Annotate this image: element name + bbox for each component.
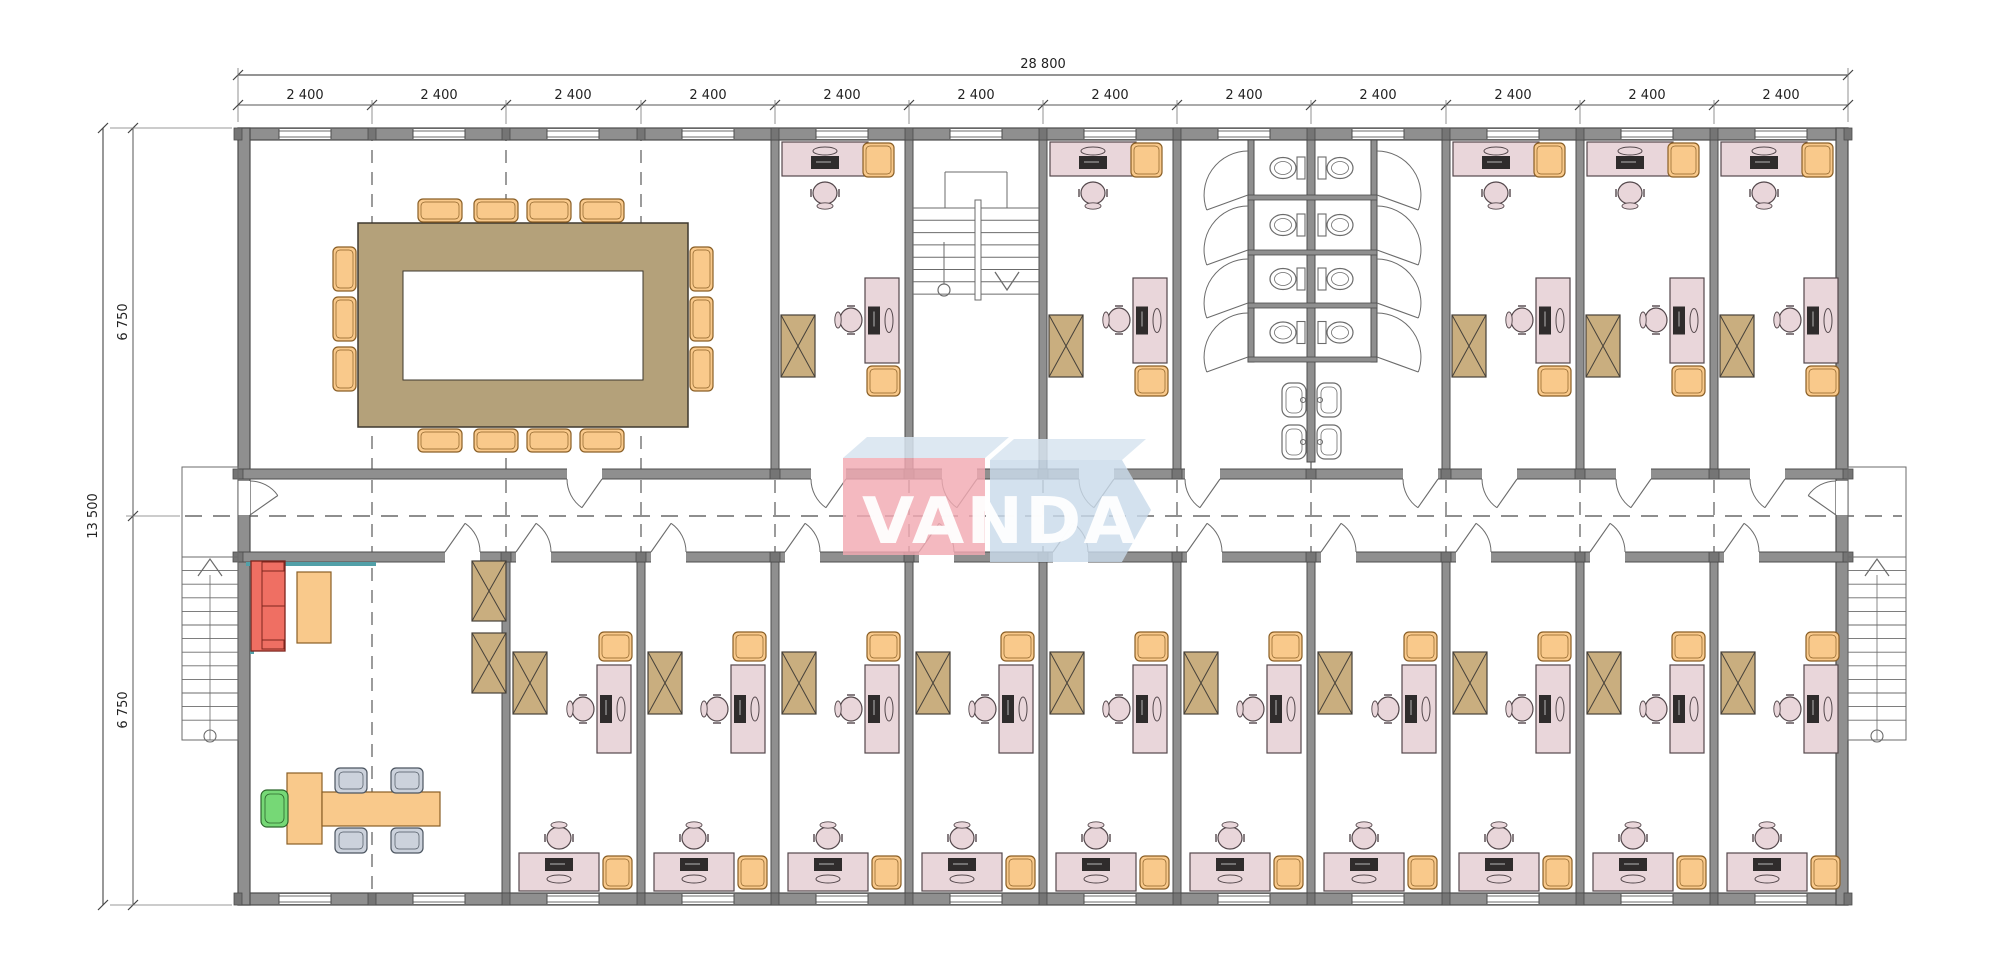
office-chair <box>1108 308 1130 332</box>
door-leaf <box>826 479 846 508</box>
visitor-chair <box>867 366 900 396</box>
door-leaf <box>1187 523 1207 552</box>
column-mark <box>905 893 913 905</box>
column-mark <box>636 552 646 562</box>
door-opening <box>1836 481 1848 515</box>
office-chair-back <box>1622 203 1638 209</box>
door-opening <box>785 551 820 563</box>
toilet-bowl <box>1270 158 1296 179</box>
office-chair-back <box>817 203 833 209</box>
office-chair <box>974 697 996 721</box>
visitor-chair <box>603 856 632 889</box>
office-chair <box>1779 697 1801 721</box>
office-chair <box>816 827 840 849</box>
door-opening <box>1321 551 1356 563</box>
office-chair <box>1081 182 1105 204</box>
office-chair-back <box>835 701 841 717</box>
column-mark <box>1710 893 1718 905</box>
stall-door-arc <box>1377 151 1421 210</box>
wall-partition-bottom <box>905 562 913 893</box>
wall-partition-top <box>771 140 779 469</box>
stall-door-leaf <box>1377 303 1418 318</box>
visitor-chair <box>1140 856 1169 889</box>
office-chair <box>950 827 974 849</box>
stall-door-leaf <box>1377 250 1418 265</box>
visitor-chair <box>1672 366 1705 396</box>
door-leaf <box>1808 496 1836 516</box>
door-opening <box>1616 468 1651 480</box>
office-chair-back <box>1756 203 1772 209</box>
stall-door-arc <box>1377 206 1421 265</box>
visitor-chair <box>1135 632 1168 661</box>
column-mark <box>368 893 376 905</box>
dim-segment-label: 2 400 <box>286 88 323 103</box>
door-opening <box>1187 551 1222 563</box>
office-chair <box>1621 827 1645 849</box>
visitor-chair <box>1408 856 1437 889</box>
door-swing-arc <box>811 479 826 508</box>
toilet-bowl <box>1327 215 1353 236</box>
column-mark <box>1844 893 1852 905</box>
visitor-chair <box>690 297 713 341</box>
visitor-chair <box>333 347 356 391</box>
column-mark <box>1709 552 1719 562</box>
stall-door-arc <box>1204 259 1248 318</box>
dim-segment-label: 2 400 <box>554 88 591 103</box>
toilet-bowl <box>1270 269 1296 290</box>
office-chair-back <box>1356 822 1372 828</box>
office-chair <box>1242 697 1264 721</box>
door-swing-arc <box>1750 479 1765 508</box>
office-chair <box>840 697 862 721</box>
visitor-chair <box>418 429 462 452</box>
dim-top-total: 28 800 <box>1020 57 1066 72</box>
visitor-chair <box>474 199 518 222</box>
visitor-chair <box>1404 632 1437 661</box>
office-chair <box>1511 697 1533 721</box>
toilet-bowl <box>1327 269 1353 290</box>
office-chair-back <box>969 701 975 717</box>
column-mark <box>502 893 510 905</box>
column-mark <box>368 128 376 140</box>
column-mark <box>1306 552 1316 562</box>
office-chair-back <box>1488 203 1504 209</box>
wall-partition-top <box>1442 140 1450 469</box>
visitor-chair <box>1274 856 1303 889</box>
door-swing-arc <box>671 523 686 552</box>
toilet-tank <box>1297 157 1305 179</box>
column-mark <box>637 128 645 140</box>
visitor-chair <box>474 429 518 452</box>
visitor-chair <box>333 297 356 341</box>
stair-landing <box>1848 467 1906 557</box>
office-chair-back <box>686 822 702 828</box>
office-chair <box>1377 697 1399 721</box>
office-chair <box>1511 308 1533 332</box>
office-chair-back <box>551 822 567 828</box>
office-chair-back <box>1759 822 1775 828</box>
stairwell <box>913 172 1039 300</box>
office-chair <box>547 827 571 849</box>
visitor-chair <box>1806 366 1839 396</box>
door-swing-arc <box>1616 479 1631 508</box>
door-leaf <box>516 523 536 552</box>
stair-landing <box>182 467 238 557</box>
column-mark <box>1709 469 1719 479</box>
door-opening <box>1456 551 1491 563</box>
office-chair <box>1752 182 1776 204</box>
coffee-table <box>297 572 331 643</box>
office-chair-back <box>1103 312 1109 328</box>
door-opening <box>1403 468 1438 480</box>
column-mark <box>234 128 242 140</box>
door-swing-arc <box>1808 481 1836 496</box>
door-leaf <box>1765 479 1785 508</box>
column-mark <box>771 893 779 905</box>
column-mark <box>770 469 780 479</box>
column-mark <box>770 552 780 562</box>
door-leaf <box>1724 523 1744 552</box>
dim-segment-label: 2 400 <box>1628 88 1665 103</box>
external-stair-left <box>182 467 238 742</box>
door-leaf <box>651 523 671 552</box>
office-chair <box>572 697 594 721</box>
wall-partition-bottom <box>1173 562 1181 893</box>
wall-partition-top <box>905 140 913 469</box>
visitor-chair <box>1677 856 1706 889</box>
wall-partition-bottom <box>1576 562 1584 893</box>
dim-segment-label: 2 400 <box>1762 88 1799 103</box>
wall-partition-bottom <box>1039 562 1047 893</box>
visitor-chair <box>1131 143 1162 177</box>
office-chair <box>1645 697 1667 721</box>
door-leaf <box>1590 523 1610 552</box>
column-mark <box>1307 128 1315 140</box>
wall-partition-top <box>1039 140 1047 469</box>
office-chair-back <box>954 822 970 828</box>
door-opening <box>651 551 686 563</box>
stall-door-leaf <box>1377 357 1418 372</box>
wall-toilet-partition <box>1248 250 1377 255</box>
dim-segment-label: 2 400 <box>1091 88 1128 103</box>
column-mark <box>1576 128 1584 140</box>
visitor-chair <box>1543 856 1572 889</box>
office-chair <box>1084 827 1108 849</box>
office-chair <box>1618 182 1642 204</box>
dim-segment-label: 2 400 <box>1494 88 1531 103</box>
door-leaf <box>445 523 465 552</box>
column-mark <box>1306 469 1316 479</box>
column-mark <box>1039 128 1047 140</box>
visitor-chair <box>1668 143 1699 177</box>
toilet-bowl <box>1270 322 1296 343</box>
visitor-chair <box>690 347 713 391</box>
door-swing-arc <box>1744 523 1759 552</box>
office-chair-back <box>1222 822 1238 828</box>
toilet-tank <box>1297 322 1305 344</box>
stall-door-leaf <box>1207 195 1248 210</box>
office-chair <box>840 308 862 332</box>
door-swing-arc <box>1476 523 1491 552</box>
column-mark <box>1173 128 1181 140</box>
visitor-chair <box>1006 856 1035 889</box>
door-leaf <box>1418 479 1438 508</box>
visitor-chair <box>1135 366 1168 396</box>
dim-segment-label: 2 400 <box>420 88 457 103</box>
office-chair <box>1108 697 1130 721</box>
wall-toilet-center <box>1307 140 1315 462</box>
stair-direction-arrow <box>995 272 1019 290</box>
dim-left-total: 13 500 <box>86 493 101 539</box>
door-opening <box>1590 551 1625 563</box>
stall-door-leaf <box>1207 357 1248 372</box>
column-mark <box>1307 893 1315 905</box>
stall-door-arc <box>1377 259 1421 318</box>
office-chair <box>1484 182 1508 204</box>
dim-segment-label: 2 400 <box>1225 88 1262 103</box>
door-leaf <box>1631 479 1651 508</box>
dim-segment-label: 2 400 <box>823 88 860 103</box>
door-swing-arc <box>1341 523 1356 552</box>
dim-segment-label: 2 400 <box>689 88 726 103</box>
door-swing-arc <box>536 523 551 552</box>
door-opening <box>1724 551 1759 563</box>
wall-partition-bottom <box>1710 562 1718 893</box>
column-mark <box>771 128 779 140</box>
door-swing-arc <box>465 523 480 552</box>
office-chair-back <box>1088 822 1104 828</box>
column-mark <box>637 893 645 905</box>
toilet-bowl <box>1270 215 1296 236</box>
wall-exterior-right <box>1836 128 1848 905</box>
door-opening <box>516 551 551 563</box>
toilet-tank <box>1297 214 1305 236</box>
reception-room <box>246 561 506 853</box>
office-chair-back <box>567 701 573 717</box>
door-leaf <box>250 496 278 516</box>
dim-segment-label: 2 400 <box>957 88 994 103</box>
office-chair-back <box>1506 312 1512 328</box>
door-opening <box>567 468 602 480</box>
external-stair-right <box>1848 467 1906 742</box>
stall-door-arc <box>1204 313 1248 372</box>
office-chair-back <box>1491 822 1507 828</box>
visitor-chair <box>580 429 624 452</box>
column-mark <box>1576 893 1584 905</box>
stair-direction-arrow <box>1865 559 1889 576</box>
office-chair-back <box>1774 701 1780 717</box>
visitor-chair <box>1538 632 1571 661</box>
visitor-chair <box>1534 143 1565 177</box>
meeting-table <box>322 792 440 826</box>
logo-box-top-left <box>843 437 1009 458</box>
office-chair-back <box>835 312 841 328</box>
column-mark <box>1441 552 1451 562</box>
visitor-chair <box>1672 632 1705 661</box>
dim-segment-label: 6 750 <box>116 691 131 728</box>
stair-direction-arrow <box>198 559 222 576</box>
office-chair-back <box>820 822 836 828</box>
office-chair-back <box>1372 701 1378 717</box>
visitor-chair <box>418 199 462 222</box>
office-chair-back <box>1085 203 1101 209</box>
wall-partition-bottom <box>637 562 645 893</box>
toilet-tank <box>1318 214 1326 236</box>
door-swing-arc <box>1403 479 1418 508</box>
wall-toilet-partition <box>1248 303 1377 308</box>
column-mark <box>1442 128 1450 140</box>
toilet-tank <box>1318 268 1326 290</box>
door-swing-arc <box>250 481 278 496</box>
door-opening <box>1750 468 1785 480</box>
office-chair <box>1487 827 1511 849</box>
column-mark <box>1173 893 1181 905</box>
stall-door-leaf <box>1377 195 1418 210</box>
column-mark <box>1575 469 1585 479</box>
column-mark <box>1441 469 1451 479</box>
stall-door-leaf <box>1207 303 1248 318</box>
wall-partition-top <box>1173 140 1181 469</box>
column-mark <box>1039 893 1047 905</box>
dim-segment-label: 6 750 <box>116 303 131 340</box>
office-chair-back <box>701 701 707 717</box>
visitor-chair <box>690 247 713 291</box>
visitor-chair <box>527 199 571 222</box>
door-opening <box>1482 468 1517 480</box>
wall-toilet-partition <box>1248 357 1377 362</box>
visitor-chair <box>872 856 901 889</box>
door-leaf <box>1456 523 1476 552</box>
visitor-chair <box>1806 632 1839 661</box>
visitor-chair <box>863 143 894 177</box>
column-mark <box>234 893 242 905</box>
visitor-chair <box>738 856 767 889</box>
wall-partition-top <box>1576 140 1584 469</box>
visitor-chair <box>867 632 900 661</box>
door-swing-arc <box>1185 479 1200 508</box>
door-leaf <box>785 523 805 552</box>
office-chair <box>1352 827 1376 849</box>
door-leaf <box>582 479 602 508</box>
wall-partition-bottom <box>771 562 779 893</box>
door-swing-arc <box>567 479 582 508</box>
door-swing-arc <box>1482 479 1497 508</box>
office-chair <box>1755 827 1779 849</box>
column-mark <box>1575 552 1585 562</box>
office-chair-back <box>1640 701 1646 717</box>
wall-partition-top <box>1710 140 1718 469</box>
office-chair <box>1218 827 1242 849</box>
column-mark <box>502 128 510 140</box>
visitor-chair <box>333 247 356 291</box>
door-opening <box>811 468 846 480</box>
conference-room <box>333 199 713 452</box>
stair-divider <box>975 200 981 300</box>
visitor-chair <box>599 632 632 661</box>
office-chair-back <box>1625 822 1641 828</box>
door-opening <box>238 481 250 515</box>
toilet-tank <box>1318 322 1326 344</box>
toilet-tank <box>1297 268 1305 290</box>
office-chair <box>813 182 837 204</box>
office-chair <box>706 697 728 721</box>
office-chair-back <box>1237 701 1243 717</box>
dim-segment-label: 2 400 <box>1359 88 1396 103</box>
toilet-tank <box>1318 157 1326 179</box>
column-mark <box>1710 128 1718 140</box>
toilet-bowl <box>1327 322 1353 343</box>
floor-plan-page: 28 800 13 500 2 4002 4002 4002 4002 4002… <box>0 0 2000 980</box>
conference-table-opening <box>403 271 643 380</box>
door-leaf <box>1321 523 1341 552</box>
stall-door-arc <box>1377 313 1421 372</box>
floor-plan-drawing: 28 800 13 500 2 4002 4002 4002 4002 4002… <box>0 0 2000 980</box>
door-leaf <box>1200 479 1220 508</box>
stall-door-arc <box>1204 151 1248 210</box>
door-swing-arc <box>1207 523 1222 552</box>
manager-desk <box>287 773 322 844</box>
column-mark <box>905 128 913 140</box>
visitor-chair <box>580 199 624 222</box>
door-opening <box>1185 468 1220 480</box>
office-chair-back <box>1506 701 1512 717</box>
office-chair-back <box>1640 312 1646 328</box>
visitor-chair <box>1811 856 1840 889</box>
office-chair-back <box>1774 312 1780 328</box>
visitor-chair <box>1001 632 1034 661</box>
wall-partition-bottom <box>1442 562 1450 893</box>
wall-exterior-left <box>238 128 250 905</box>
stall-door-arc <box>1204 206 1248 265</box>
visitor-chair <box>733 632 766 661</box>
visitor-chair <box>1538 366 1571 396</box>
office-chair-back <box>1103 701 1109 717</box>
visitor-chair <box>1802 143 1833 177</box>
office-chair <box>1779 308 1801 332</box>
wall-toilet-partition <box>1248 195 1377 200</box>
vanda-watermark-text: VANDA <box>862 485 1138 559</box>
office-chair <box>1645 308 1667 332</box>
wall-partition-bottom <box>1307 562 1315 893</box>
column-mark <box>1172 469 1182 479</box>
stall-door-leaf <box>1207 250 1248 265</box>
door-swing-arc <box>1610 523 1625 552</box>
column-mark <box>1844 128 1852 140</box>
toilet-bowl <box>1327 158 1353 179</box>
logo-box-top-right <box>990 439 1146 460</box>
visitor-chair <box>1269 632 1302 661</box>
door-swing-arc <box>805 523 820 552</box>
visitor-chair <box>527 429 571 452</box>
door-leaf <box>1497 479 1517 508</box>
office-chair <box>682 827 706 849</box>
column-mark <box>1172 552 1182 562</box>
column-mark <box>1442 893 1450 905</box>
